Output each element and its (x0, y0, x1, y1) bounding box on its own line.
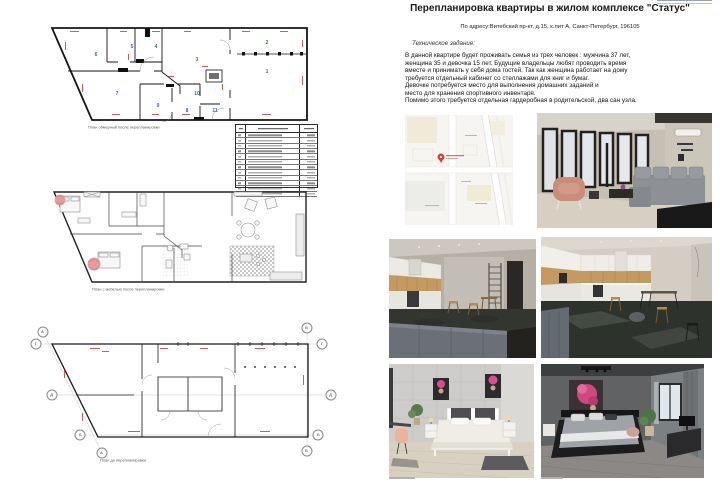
plan-before-caption: План до перепланировки (100, 459, 146, 463)
photo-kitchen-dining-left (389, 239, 536, 358)
photo-kitchen-dining-right (541, 237, 712, 358)
room-number: 4 (155, 44, 158, 50)
axis-marker: А (97, 448, 108, 459)
floor-plan-measured-drawing (32, 26, 317, 126)
axis-marker: Г (317, 339, 328, 350)
ac-unit (675, 129, 701, 136)
photo-caption-stub (541, 477, 563, 479)
room-number: 5 (131, 44, 134, 50)
location-map (405, 115, 513, 225)
kitchen-cabinets (389, 257, 441, 317)
room-number: 9 (157, 103, 160, 109)
axis-marker: Д (47, 390, 58, 401)
corner-stamp (657, 0, 712, 1)
photo-living-room (537, 113, 712, 228)
axis-marker: В (302, 323, 313, 334)
axis-marker: Г (31, 339, 42, 350)
corner-stamp-line (657, 3, 712, 4)
room-number: 2 (266, 40, 269, 46)
brief-line: женщина 35 и девочка 15 лет. Будущие вла… (405, 60, 720, 68)
floor-plan-measured: 1234567891011 План обмерный после перепл… (32, 26, 318, 192)
room-schedule-table (235, 124, 318, 188)
nightstand (543, 424, 555, 436)
sofa-edge (541, 307, 569, 358)
dimension-marks (64, 348, 304, 432)
axis-marker: В (302, 446, 313, 457)
room-number: 7 (116, 91, 119, 97)
floor-plan-furnished-drawing (34, 188, 312, 288)
pouf (627, 427, 640, 437)
brief-line: вместе и принимать у себя дома гостей. Т… (405, 67, 720, 75)
axis-marker: Д (326, 390, 337, 401)
plan-furnished-caption: План с мебелью после перепланировки (92, 288, 164, 292)
page-subtitle: По адресу:Витебский пр-кт, д.15, к.лит А… (385, 24, 715, 30)
rug (481, 456, 529, 470)
axis-marker: А (38, 327, 49, 338)
presentation-page: Перепланировка квартиры в жилом комплекс… (0, 0, 720, 480)
photo-bedroom-light (389, 364, 534, 478)
photo-caption-stub (389, 477, 415, 479)
room-number: 8 (186, 108, 189, 114)
photo-bedroom-dark (541, 364, 704, 478)
brief-line: Девочке потребуется место для выполнения… (405, 82, 720, 90)
door-swing-arcs (142, 368, 235, 437)
room-number: 1 (266, 69, 269, 75)
page-title: Перепланировка квартиры в жилом комплекс… (385, 3, 715, 14)
brief-heading: Техническое задание: (412, 40, 475, 47)
brief-text: В данной квартире будет проживать семья … (405, 52, 720, 105)
plan-measured-caption: План обмерный после перепланировки (88, 126, 160, 130)
wall-art (569, 380, 603, 414)
floor-plan-furnished: План с мебелью после перепланировки (34, 188, 314, 300)
room-number: 11 (212, 108, 217, 114)
room-number: 10 (194, 91, 200, 97)
schedule-header (236, 125, 317, 133)
floor-plan-before: А Г Д Б А В (30, 315, 340, 467)
brief-line: В данной квартире будет проживать семья … (405, 52, 720, 60)
brief-line: Помимо этого требуется отдельная гардеро… (405, 97, 720, 105)
axis-marker: Б (75, 430, 86, 441)
room-number: 6 (95, 52, 98, 58)
room-number: 3 (196, 57, 199, 63)
sofa (629, 167, 705, 207)
floor-plan-before-drawing (30, 315, 340, 465)
axis-marker: Б (313, 430, 324, 441)
